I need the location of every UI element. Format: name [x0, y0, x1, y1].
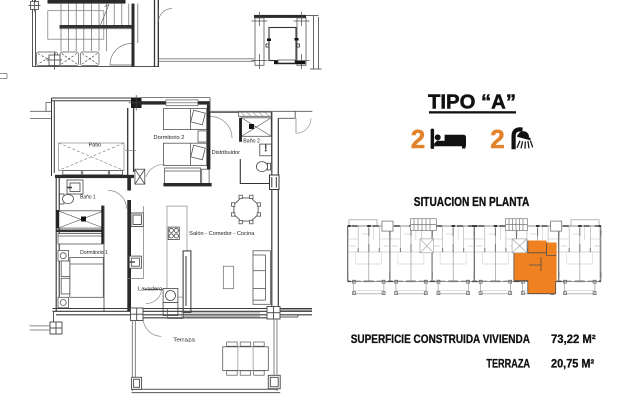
svg-text:Baño 2: Baño 2: [243, 138, 260, 144]
svg-text:Baño 1: Baño 1: [80, 195, 96, 201]
svg-text:2: 2: [490, 124, 504, 154]
svg-text:73,22 M²: 73,22 M²: [551, 332, 596, 346]
svg-text:Distribuidor: Distribuidor: [212, 150, 241, 156]
svg-text:TIPO “A”: TIPO “A”: [428, 91, 516, 114]
svg-text:TERRAZA: TERRAZA: [486, 357, 530, 371]
svg-text:Salón - Comedor - Cocina: Salón - Comedor - Cocina: [189, 231, 254, 237]
svg-text:SUPERFICIE CONSTRUIDA VIVIENDA: SUPERFICIE CONSTRUIDA VIVIENDA: [351, 332, 531, 346]
svg-text:Terraza: Terraza: [173, 337, 195, 343]
svg-text:SITUACION EN PLANTA: SITUACION EN PLANTA: [414, 194, 530, 209]
svg-text:20,75 M²: 20,75 M²: [551, 357, 594, 371]
svg-text:Dormitorio 2: Dormitorio 2: [154, 135, 185, 141]
svg-text:Patio: Patio: [89, 142, 102, 148]
svg-text:2: 2: [411, 124, 425, 154]
